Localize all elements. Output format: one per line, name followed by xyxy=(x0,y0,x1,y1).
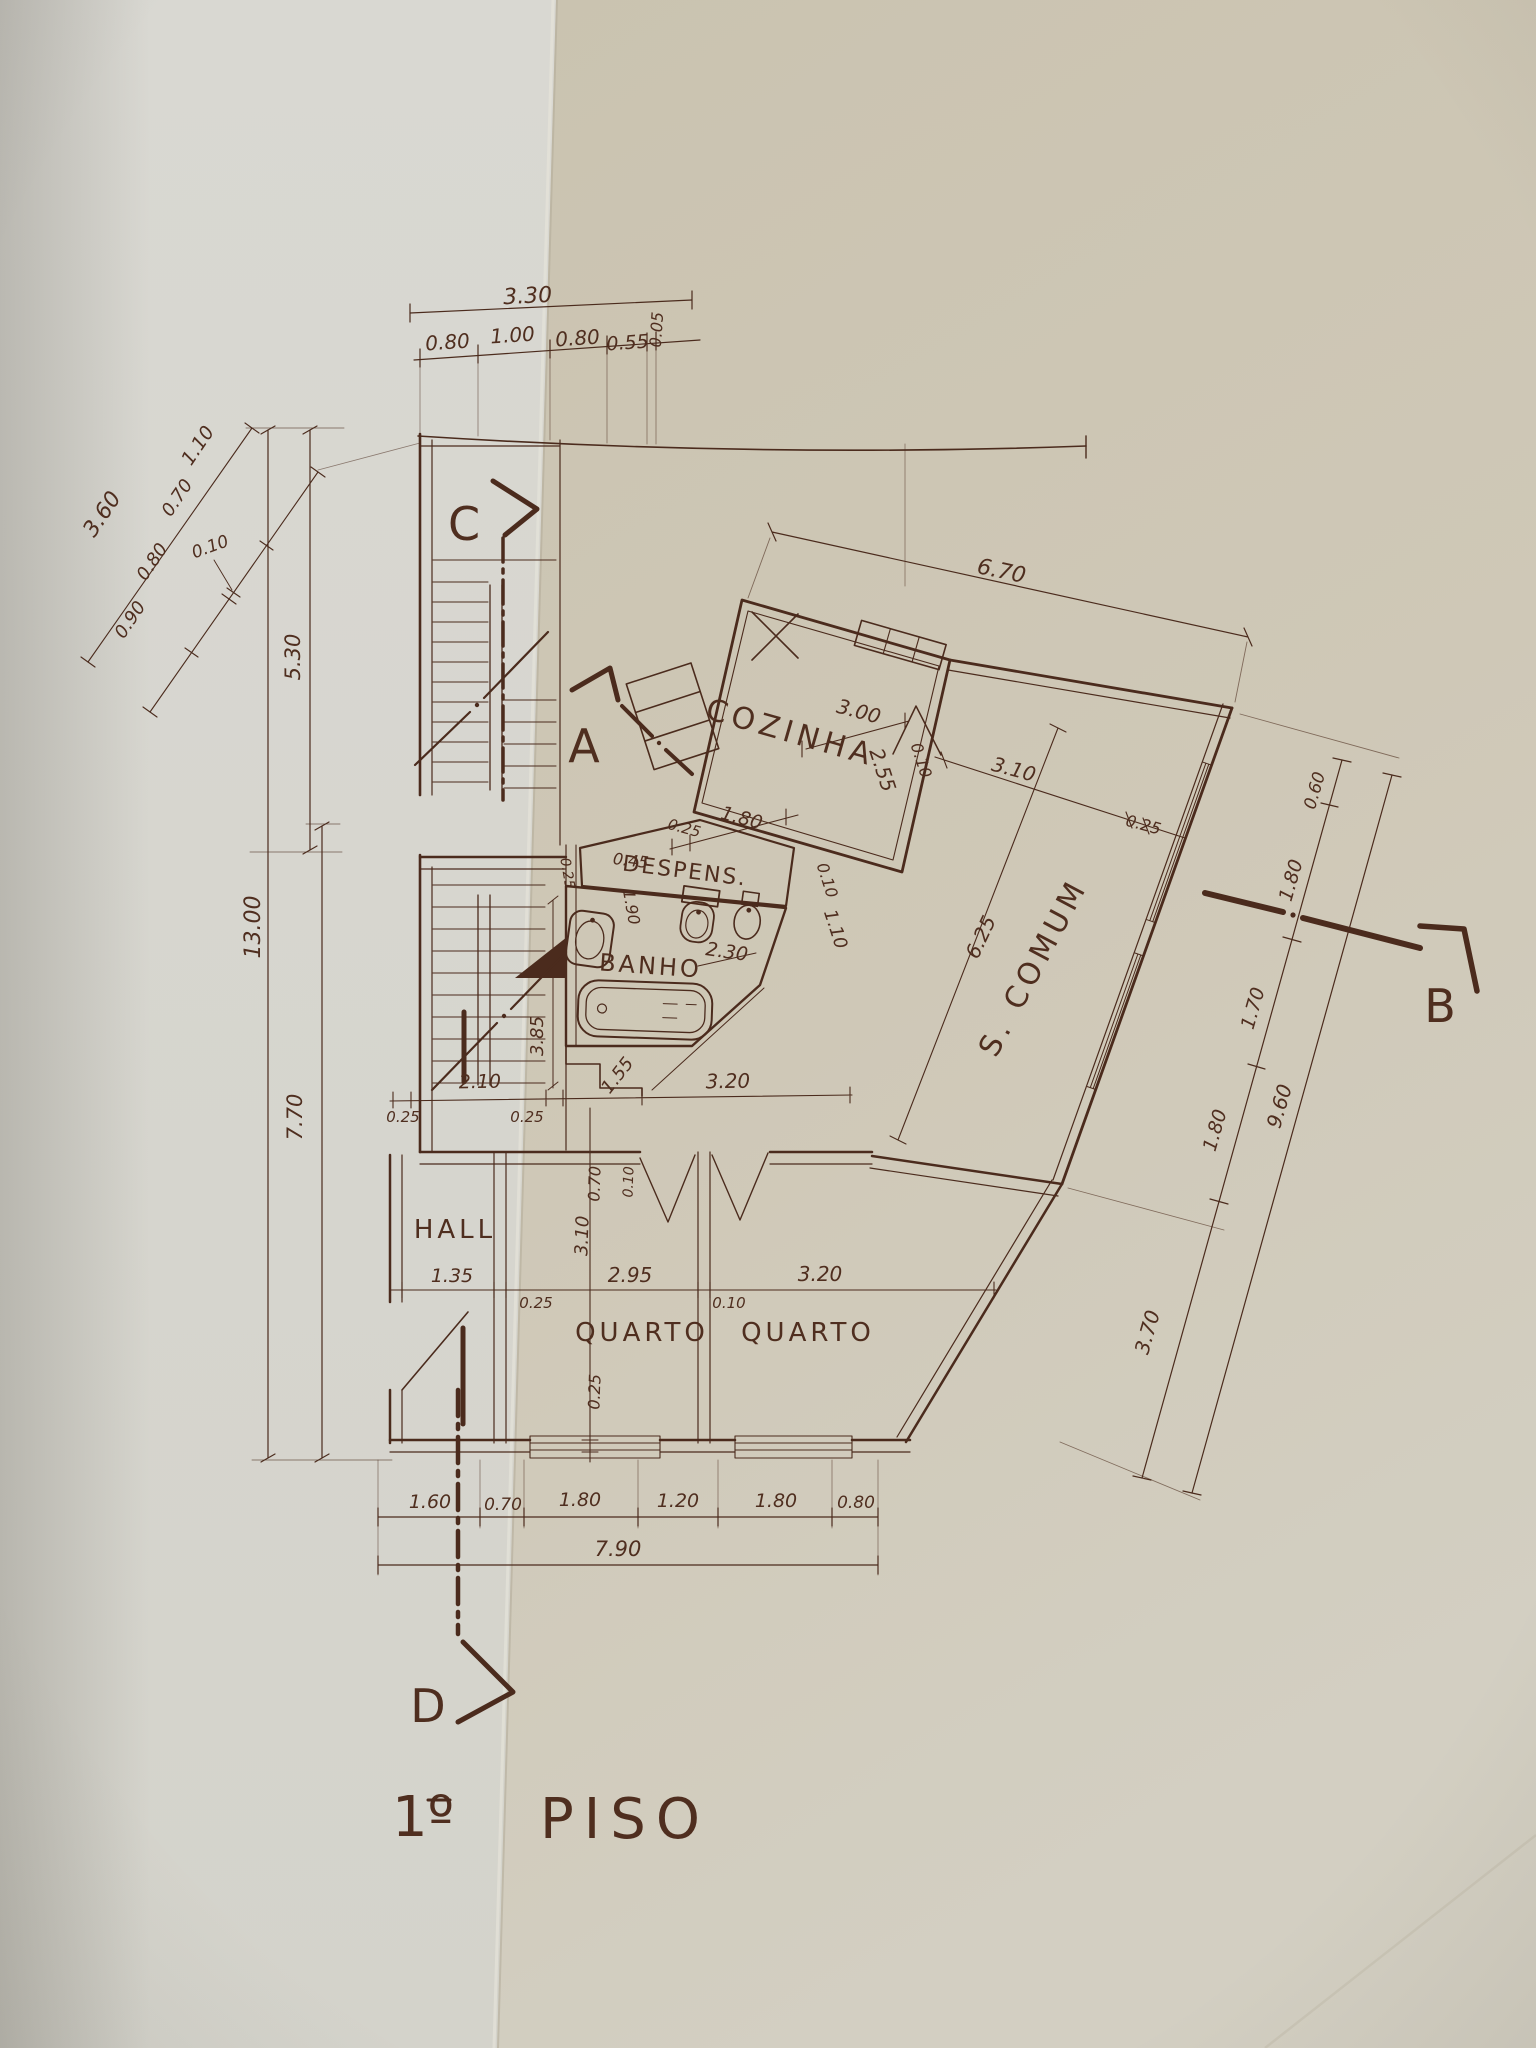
photo-vignette xyxy=(0,0,1536,2048)
floor-plan-photo: 3.30 0.80 1.00 0.80 0.55 0.05 3.60 1.10 … xyxy=(0,0,1536,2048)
blueprint-svg: 3.30 0.80 1.00 0.80 0.55 0.05 3.60 1.10 … xyxy=(0,0,1536,2048)
